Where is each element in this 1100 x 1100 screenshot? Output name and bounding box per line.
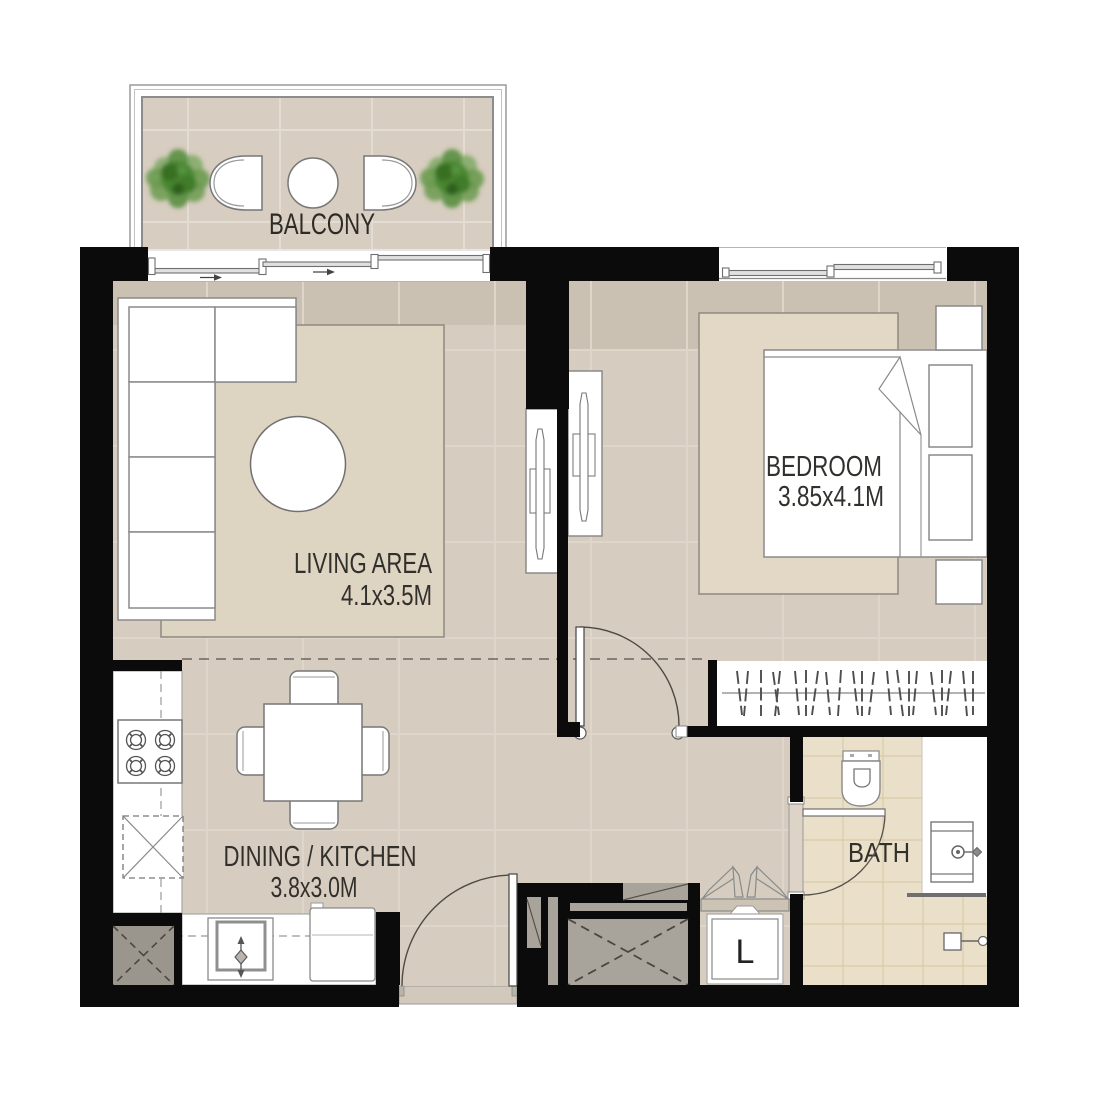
svg-text:DINING / KITCHEN: DINING / KITCHEN	[224, 841, 417, 873]
svg-text:L: L	[736, 933, 755, 971]
svg-text:3.8x3.0M: 3.8x3.0M	[271, 872, 358, 904]
svg-text:LIVING AREA: LIVING AREA	[294, 548, 433, 580]
svg-text:4.1x3.5M: 4.1x3.5M	[341, 580, 432, 612]
svg-text:BEDROOM: BEDROOM	[766, 451, 882, 483]
svg-text:3.85x4.1M: 3.85x4.1M	[778, 481, 884, 513]
svg-text:BATH: BATH	[848, 837, 910, 868]
svg-text:BALCONY: BALCONY	[269, 208, 375, 241]
